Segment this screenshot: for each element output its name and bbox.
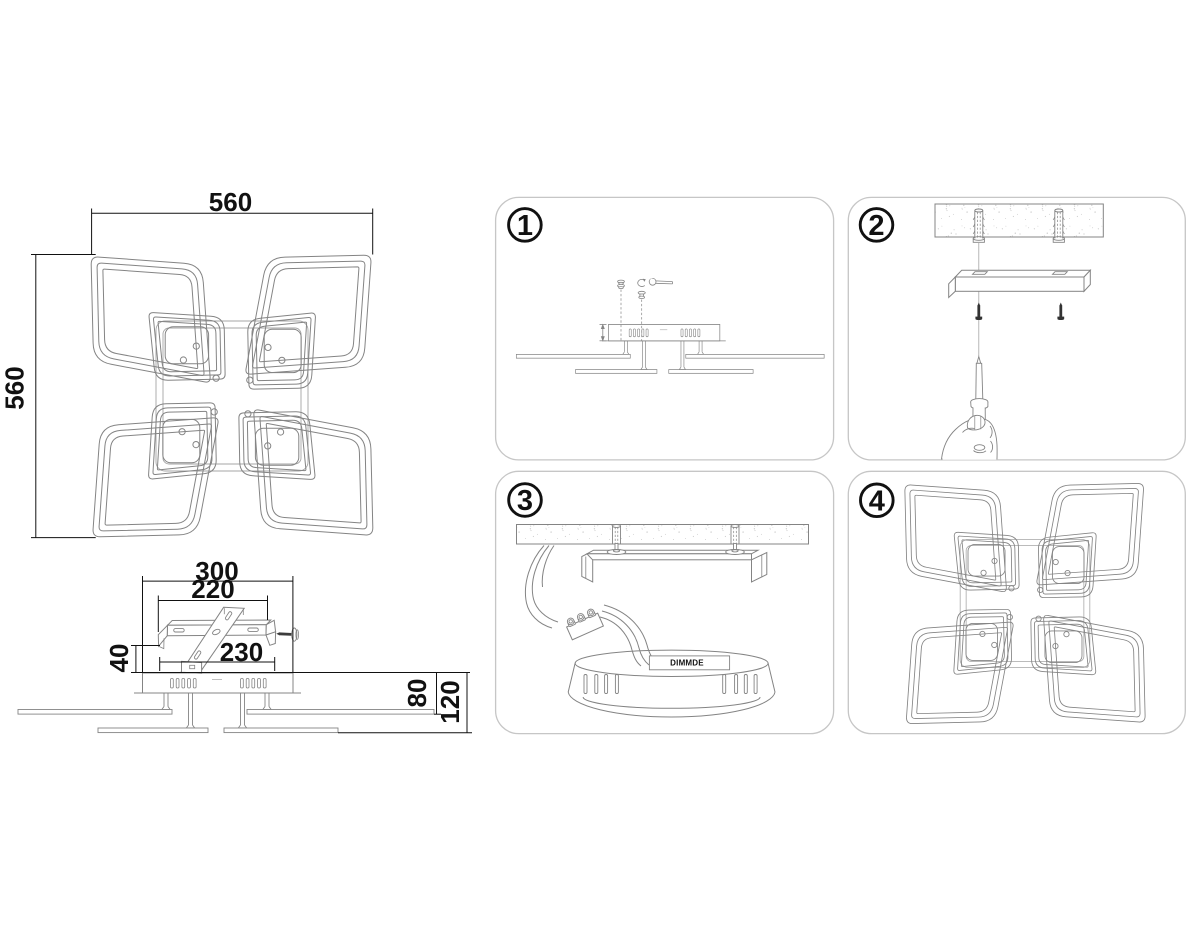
svg-text:1: 1: [517, 210, 533, 242]
svg-text:120: 120: [435, 680, 465, 723]
svg-text:2: 2: [868, 210, 884, 242]
svg-text:4: 4: [869, 485, 885, 517]
svg-text:230: 230: [220, 637, 263, 667]
svg-text:DIMMDE: DIMMDE: [670, 659, 704, 668]
svg-text:40: 40: [104, 644, 134, 673]
svg-text:80: 80: [402, 679, 432, 708]
svg-text:3: 3: [517, 485, 533, 517]
svg-text:220: 220: [191, 574, 234, 604]
svg-text:560: 560: [209, 187, 252, 217]
svg-text:560: 560: [0, 366, 30, 409]
